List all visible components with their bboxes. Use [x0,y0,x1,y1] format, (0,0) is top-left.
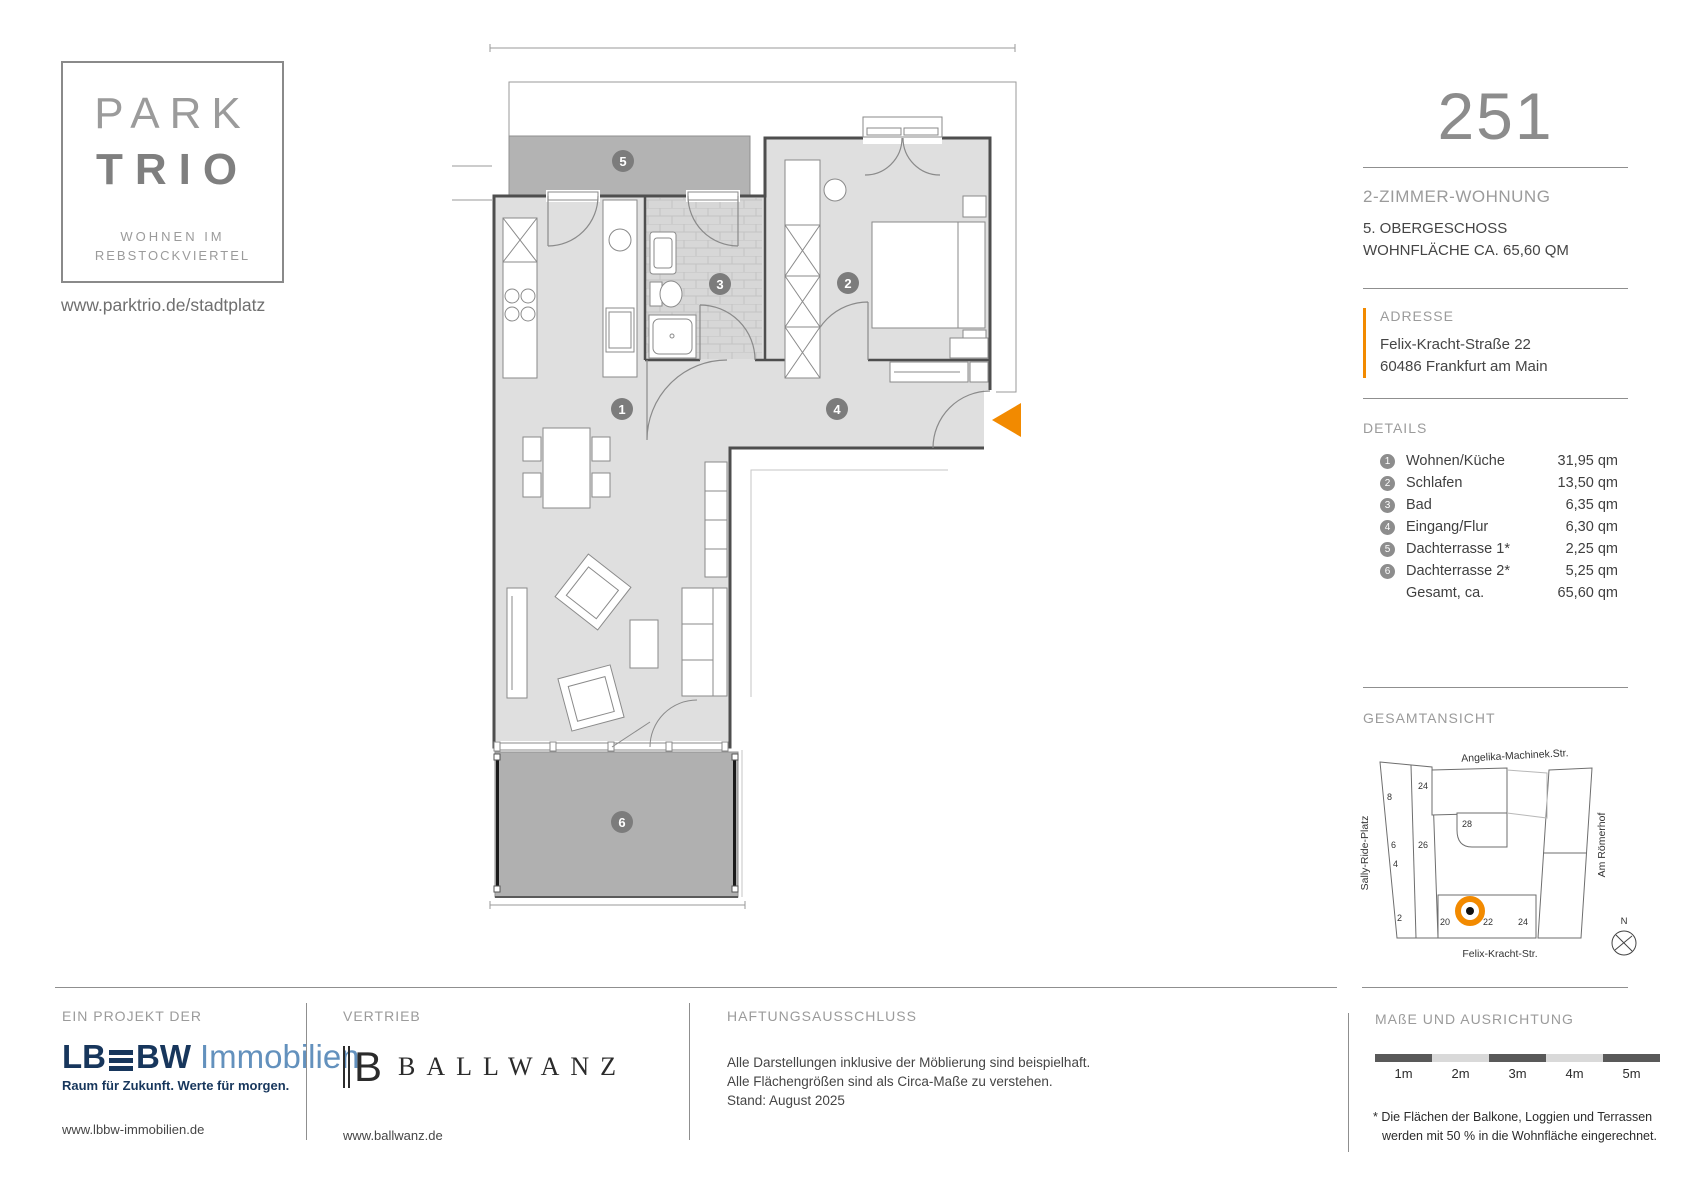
scale-tick: 2m [1432,1066,1489,1081]
room-name: Dachterrasse 2* [1395,563,1566,579]
table-row: 3Bad6,35 qm [1380,494,1618,516]
lbbw-url: www.lbbw-immobilien.de [62,1122,204,1137]
street-right: Am Römerhof [1596,813,1608,878]
table-row: 5Dachterrasse 1*2,25 qm [1380,538,1618,560]
badge-3: 3 [716,277,723,292]
room-number-badge: 1 [1380,454,1395,469]
table-row: 1Wohnen/Küche31,95 qm [1380,450,1618,472]
divider [1363,288,1628,289]
room-name: Schlafen [1395,475,1558,491]
expose-page: PARK TRIO WOHNEN IM REBSTOCKVIERTEL www.… [0,0,1683,1190]
room-name: Bad [1395,497,1566,513]
unit-floor-info: 5. OBERGESCHOSS WOHNFLÄCHE CA. 65,60 QM [1363,218,1628,262]
scale-tick: 3m [1489,1066,1546,1081]
details-label: DETAILS [1363,420,1628,436]
room-name: Wohnen/Küche [1395,453,1558,469]
disclaimer-text: Alle Darstellungen inklusive der Möblier… [727,1053,1090,1110]
room-number-badge: 5 [1380,542,1395,557]
table-row-total: Gesamt, ca.65,60 qm [1380,582,1618,604]
footnote-line: werden mit 50 % in die Wohnfläche einger… [1373,1127,1657,1146]
details-table: 1Wohnen/Küche31,95 qm 2Schlafen13,50 qm … [1380,450,1618,604]
svg-text:26: 26 [1418,840,1428,850]
svg-text:2: 2 [1397,913,1402,923]
unit-area: WOHNFLÄCHE CA. 65,60 QM [1363,240,1628,262]
compass-n: N [1621,916,1628,927]
address-street: Felix-Kracht-Straße 22 [1380,334,1645,356]
site-map: 8 24 6 26 4 2 28 20 22 24 Angelika-Machi… [1352,738,1642,966]
lbbw-tagline: Raum für Zukunft. Werte für morgen. [62,1078,289,1093]
footer-vdivider [689,1003,690,1140]
brand-claim-line2: REBSTOCKVIERTEL [63,248,282,263]
svg-text:4: 4 [1393,859,1398,869]
area-footnote: * Die Flächen der Balkone, Loggien und T… [1373,1108,1657,1146]
badge-6: 6 [618,815,625,830]
svg-text:6: 6 [1391,840,1396,850]
badge-4: 4 [833,402,841,417]
sales-label: VERTRIEB [343,1008,421,1024]
unit-type: 2-ZIMMER-WOHNUNG [1363,187,1628,207]
disclaimer-date: Stand: August 2025 [727,1091,1090,1110]
svg-text:20: 20 [1440,917,1450,927]
disclaimer-line: Alle Flächengrößen sind als Circa-Maße z… [727,1072,1090,1091]
ballwanz-url: www.ballwanz.de [343,1128,443,1143]
room-name: Dachterrasse 1* [1395,541,1566,557]
scale-bar [1375,1054,1660,1062]
street-top: Angelika-Machinek.Str. [1461,747,1569,765]
ballwanz-bars-icon [343,1046,353,1088]
lbbw-lb: LB [62,1040,106,1073]
neighbor-outline [742,470,948,897]
disclaimer-label: HAFTUNGSAUSSCHLUSS [727,1008,917,1024]
svg-text:28: 28 [1462,819,1472,829]
address-label: ADRESSE [1380,308,1645,324]
project-label: EIN PROJEKT DER [62,1008,202,1024]
measure-label: MAßE UND AUSRICHTUNG [1375,1011,1574,1027]
room-number-badge: 6 [1380,564,1395,579]
badge-2: 2 [844,276,851,291]
badge-5: 5 [619,154,626,169]
address-block: ADRESSE Felix-Kracht-Straße 22 60486 Fra… [1363,308,1645,378]
room-area: 2,25 qm [1566,541,1618,557]
brand-logo-line2: TRIO [63,145,282,195]
entrance-arrow-icon [992,403,1021,437]
svg-text:24: 24 [1418,781,1428,791]
disclaimer-line: Alle Darstellungen inklusive der Möblier… [727,1053,1090,1072]
overview-label: GESAMTANSICHT [1363,710,1628,726]
unit-number: 251 [1363,78,1628,154]
scale-tick: 4m [1546,1066,1603,1081]
ballwanz-name: BALLWANZ [398,1052,627,1082]
divider [1363,398,1628,399]
svg-text:24: 24 [1518,917,1528,927]
room-number-badge: 4 [1380,520,1395,535]
brand-logo-line1: PARK [63,89,282,139]
lbbw-bw: BW [136,1040,191,1073]
divider [1363,167,1628,168]
unit-location-dot [1466,907,1474,915]
footer-divider [1362,987,1628,988]
footnote-line: * Die Flächen der Balkone, Loggien und T… [1373,1108,1657,1127]
scale-tick: 5m [1603,1066,1660,1081]
room-area: 6,30 qm [1566,519,1618,535]
room-name: Eingang/Flur [1395,519,1566,535]
room-area: 31,95 qm [1558,453,1618,469]
lbbw-immobilien: Immobilien [200,1040,360,1073]
site-buildings [1380,762,1592,938]
table-row: 6Dachterrasse 2*5,25 qm [1380,560,1618,582]
site-building-light [1507,770,1547,818]
room-number-badge: 3 [1380,498,1395,513]
ballwanz-mark-b: B [354,1047,382,1087]
compass-icon: N [1612,916,1636,955]
room-area: 5,25 qm [1566,563,1618,579]
scale-bar-ticks: 1m 2m 3m 4m 5m [1375,1066,1660,1081]
brand-website: www.parktrio.de/stadtplatz [61,295,265,316]
brand-logo: PARK TRIO WOHNEN IM REBSTOCKVIERTEL [61,61,284,283]
footer-divider [55,987,1337,988]
room-area: 6,35 qm [1566,497,1618,513]
footer-vdivider [1348,1013,1349,1152]
svg-text:22: 22 [1483,917,1493,927]
address-city: 60486 Frankfurt am Main [1380,356,1645,378]
svg-text:8: 8 [1387,792,1392,802]
room-number-badge: 2 [1380,476,1395,491]
street-left: Sally-Ride-Platz [1359,816,1371,891]
lbbw-logo: LB BW Immobilien [62,1040,360,1073]
street-bottom: Felix-Kracht-Str. [1462,948,1537,960]
room-area: 13,50 qm [1558,475,1618,491]
table-row: 2Schlafen13,50 qm [1380,472,1618,494]
table-row: 4Eingang/Flur6,30 qm [1380,516,1618,538]
ballwanz-logo: B BALLWANZ [343,1046,627,1088]
floor-plan: 1 2 3 4 5 6 [440,30,1030,910]
total-area: 65,60 qm [1558,585,1618,601]
lbbw-bars-icon [109,1047,133,1071]
brand-claim-line1: WOHNEN IM [63,229,282,244]
badge-1: 1 [618,402,625,417]
scale-tick: 1m [1375,1066,1432,1081]
divider [1363,687,1628,688]
total-label: Gesamt, ca. [1395,585,1558,601]
unit-floor: 5. OBERGESCHOSS [1363,218,1628,240]
